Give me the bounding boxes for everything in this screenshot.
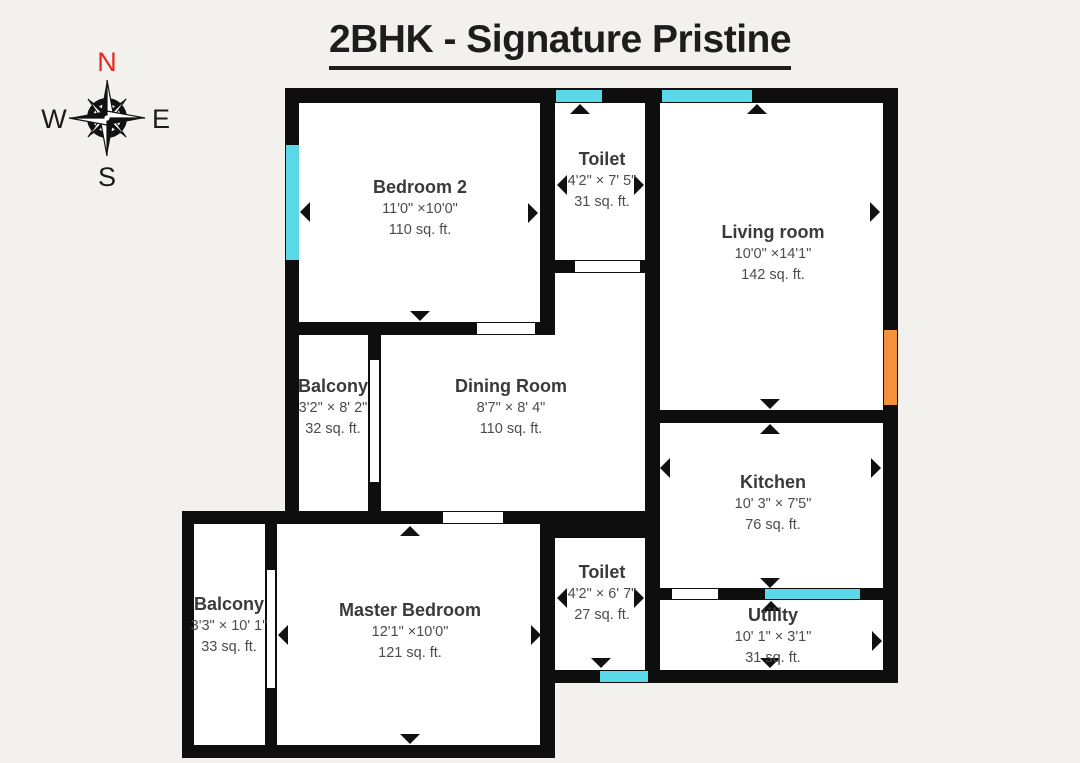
- marker-living-top-icon: [747, 104, 767, 114]
- room-name: Kitchen: [673, 471, 873, 494]
- compass-rose-icon: N S W E: [37, 43, 177, 193]
- door-opening-kitchen-utility: [672, 589, 718, 599]
- room-dimensions: 10' 1" × 3'1": [673, 627, 873, 648]
- room-name: Toilet: [547, 561, 657, 584]
- door-opening-master-hall: [443, 512, 503, 523]
- room-area: 110 sq. ft.: [411, 419, 611, 440]
- compass-north-label: N: [97, 47, 117, 77]
- marker-master-left-icon: [278, 625, 288, 645]
- wall-outer-bottom-right: [540, 670, 898, 683]
- marker-living-right-icon: [870, 202, 880, 222]
- plan-title: 2BHK - Signature Pristine: [329, 18, 791, 70]
- window-kitchen-utility: [765, 589, 860, 599]
- room-name: Utility: [673, 604, 873, 627]
- room-name: Bedroom 2: [320, 176, 520, 199]
- compass-west-label: W: [41, 104, 67, 134]
- window-toilet2-bottom: [600, 671, 648, 682]
- main-door: [884, 330, 897, 405]
- door-opening-toilet1: [575, 261, 640, 272]
- marker-toilet2-bottom-icon: [591, 658, 611, 668]
- door-opening-bedroom2: [477, 323, 535, 334]
- compass-south-label: S: [98, 162, 116, 192]
- room-area: 76 sq. ft.: [673, 515, 873, 536]
- room-dimensions: 11'0" ×10'0": [320, 199, 520, 220]
- wall-toilet2-top: [540, 524, 660, 538]
- room-area: 32 sq. ft.: [290, 419, 376, 440]
- wall-master-right: [540, 524, 555, 758]
- room-dimensions: 3'2" × 8' 2": [290, 398, 376, 419]
- marker-toilet1-top-icon: [570, 104, 590, 114]
- room-label-living: Living room 10'0" ×14'1" 142 sq. ft.: [673, 221, 873, 286]
- wall-dining-bottom: [182, 511, 658, 524]
- window-bedroom2-left: [286, 145, 299, 260]
- room-area: 27 sq. ft.: [547, 605, 657, 626]
- marker-bedroom2-left-icon: [300, 202, 310, 222]
- room-dimensions: 10'0" ×14'1": [673, 244, 873, 265]
- room-dimensions: 4'2" × 6' 7": [547, 584, 657, 605]
- wall-living-kitchen: [650, 410, 898, 423]
- room-label-toilet2: Toilet 4'2" × 6' 7" 27 sq. ft.: [547, 561, 657, 626]
- room-area: 110 sq. ft.: [320, 220, 520, 241]
- compass-east-label: E: [152, 104, 170, 134]
- wall-master-bottom: [182, 745, 555, 758]
- room-label-kitchen: Kitchen 10' 3" × 7'5" 76 sq. ft.: [673, 471, 873, 536]
- floor-plan-canvas: 2BHK - Signature Pristine N S W E: [0, 0, 1080, 763]
- plan-title-wrap: 2BHK - Signature Pristine: [40, 18, 1080, 70]
- marker-living-bottom-icon: [760, 399, 780, 409]
- room-label-utility: Utility 10' 1" × 3'1" 31 sq. ft.: [673, 604, 873, 669]
- room-name: Balcony: [186, 593, 272, 616]
- room-name: Master Bedroom: [310, 599, 510, 622]
- window-living-top: [662, 90, 752, 102]
- room-dimensions: 3'3" × 10' 1": [186, 616, 272, 637]
- marker-master-right-icon: [531, 625, 541, 645]
- room-name: Toilet: [547, 148, 657, 171]
- room-name: Balcony: [290, 375, 376, 398]
- marker-master-top-icon: [400, 526, 420, 536]
- marker-bedroom2-bottom-icon: [410, 311, 430, 321]
- marker-master-bottom-icon: [400, 734, 420, 744]
- room-area: 31 sq. ft.: [673, 648, 873, 669]
- room-area: 33 sq. ft.: [186, 637, 272, 658]
- window-toilet1-top: [556, 90, 602, 102]
- marker-kitchen-bottom-icon: [760, 578, 780, 588]
- marker-kitchen-left-icon: [660, 458, 670, 478]
- room-label-balcony1: Balcony 3'2" × 8' 2" 32 sq. ft.: [290, 375, 376, 440]
- room-dimensions: 8'7" × 8' 4": [411, 398, 611, 419]
- room-name: Living room: [673, 221, 873, 244]
- marker-utility-right-icon: [872, 631, 882, 651]
- room-label-master: Master Bedroom 12'1" ×10'0" 121 sq. ft.: [310, 599, 510, 664]
- room-area: 121 sq. ft.: [310, 643, 510, 664]
- room-area: 142 sq. ft.: [673, 265, 873, 286]
- room-dimensions: 4'2" × 7' 5": [547, 171, 657, 192]
- marker-bedroom2-right-icon: [528, 203, 538, 223]
- room-label-bedroom2: Bedroom 2 11'0" ×10'0" 110 sq. ft.: [320, 176, 520, 241]
- room-label-dining: Dining Room 8'7" × 8' 4" 110 sq. ft.: [411, 375, 611, 440]
- room-label-toilet1: Toilet 4'2" × 7' 5" 31 sq. ft.: [547, 148, 657, 213]
- room-label-balcony2: Balcony 3'3" × 10' 1" 33 sq. ft.: [186, 593, 272, 658]
- marker-kitchen-top-icon: [760, 424, 780, 434]
- room-dimensions: 10' 3" × 7'5": [673, 494, 873, 515]
- room-name: Dining Room: [411, 375, 611, 398]
- room-area: 31 sq. ft.: [547, 192, 657, 213]
- room-dimensions: 12'1" ×10'0": [310, 622, 510, 643]
